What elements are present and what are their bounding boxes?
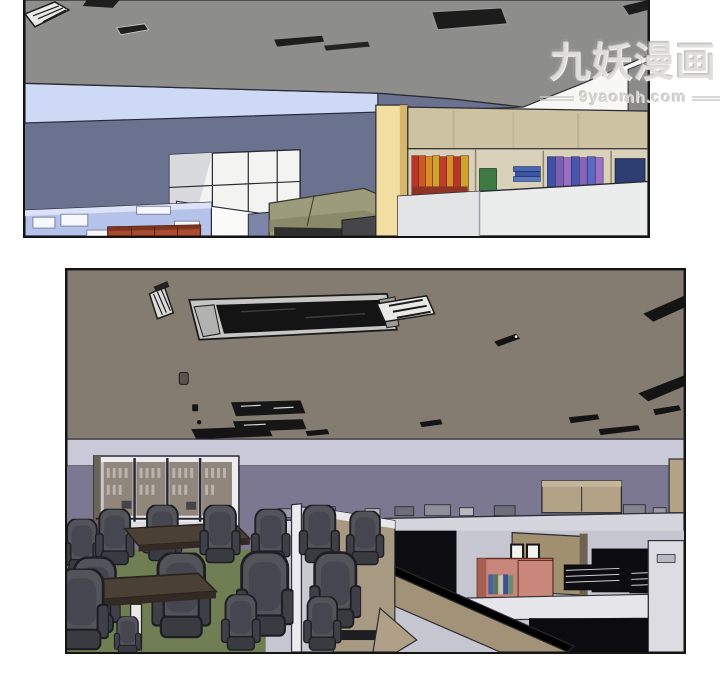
watermark-dash-right — [692, 96, 720, 101]
office-chair — [200, 505, 240, 563]
office-chair — [95, 509, 133, 565]
panel2-ceiling — [67, 270, 684, 444]
panel-2-scene — [67, 270, 684, 652]
shelf-books — [488, 574, 513, 594]
tan-column — [669, 459, 684, 513]
office-chair — [114, 616, 140, 652]
books-stacked — [513, 167, 540, 182]
office-chair — [67, 568, 109, 649]
comic-page: 九妖漫画 9yaomh.com — [0, 0, 720, 700]
office-chair — [222, 594, 260, 650]
comic-panel-2 — [65, 268, 686, 654]
salmon-bookshelf — [477, 558, 553, 598]
comic-panel-1 — [23, 0, 650, 238]
red-sideboard — [108, 225, 201, 236]
panel-1-scene — [25, 0, 648, 236]
office-chair — [304, 596, 341, 650]
